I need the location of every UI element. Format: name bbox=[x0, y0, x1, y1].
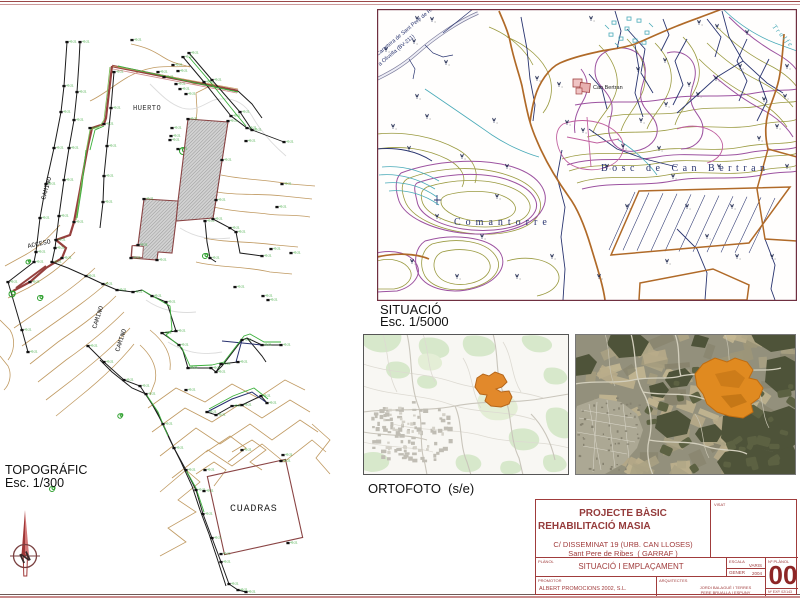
svg-text:49.21: 49.21 bbox=[140, 243, 148, 247]
svg-text:49.21: 49.21 bbox=[174, 126, 182, 130]
svg-text:CAMINO: CAMINO bbox=[114, 328, 128, 353]
svg-text:49.21: 49.21 bbox=[36, 260, 44, 264]
svg-text:49.21: 49.21 bbox=[283, 459, 291, 463]
svg-text:49.21: 49.21 bbox=[66, 178, 74, 182]
svg-text:CAMINO: CAMINO bbox=[40, 176, 53, 201]
svg-text:49.21: 49.21 bbox=[32, 280, 40, 284]
svg-text:49.21: 49.21 bbox=[66, 84, 74, 88]
svg-text:49.21: 49.21 bbox=[190, 366, 198, 370]
svg-text:49.21: 49.21 bbox=[191, 51, 199, 55]
svg-text:49.21: 49.21 bbox=[209, 410, 217, 414]
svg-text:49.21: 49.21 bbox=[224, 158, 232, 162]
svg-text:49.21: 49.21 bbox=[212, 256, 220, 260]
svg-text:49.21: 49.21 bbox=[126, 378, 134, 382]
svg-text:49.21: 49.21 bbox=[10, 280, 18, 284]
svg-text:49.21: 49.21 bbox=[79, 90, 87, 94]
svg-text:49.21: 49.21 bbox=[106, 174, 114, 178]
svg-text:49.21: 49.21 bbox=[181, 343, 189, 347]
svg-text:49.21: 49.21 bbox=[38, 250, 46, 254]
svg-text:49.21: 49.21 bbox=[54, 260, 62, 264]
svg-text:49.21: 49.21 bbox=[148, 392, 156, 396]
svg-text:Bosc de Can Bertran: Bosc de Can Bertran bbox=[601, 163, 770, 174]
svg-text:49.21: 49.21 bbox=[178, 82, 186, 86]
svg-text:49.21: 49.21 bbox=[133, 256, 141, 260]
svg-text:CAMINO: CAMINO bbox=[91, 305, 105, 330]
svg-text:49.21: 49.21 bbox=[240, 360, 248, 364]
svg-text:49.21: 49.21 bbox=[244, 403, 252, 407]
svg-text:49.21: 49.21 bbox=[146, 197, 154, 201]
svg-text:49.21: 49.21 bbox=[283, 343, 291, 347]
svg-text:49.21: 49.21 bbox=[116, 70, 124, 74]
svg-text:49.21: 49.21 bbox=[165, 422, 173, 426]
svg-text:49.21: 49.21 bbox=[269, 401, 277, 405]
svg-text:49.21: 49.21 bbox=[63, 110, 71, 114]
svg-text:49.21: 49.21 bbox=[154, 294, 162, 298]
svg-text:49.21: 49.21 bbox=[188, 468, 196, 472]
svg-text:49.21: 49.21 bbox=[233, 114, 241, 118]
svg-text:49.21: 49.21 bbox=[69, 40, 77, 44]
svg-text:49.21: 49.21 bbox=[135, 290, 143, 294]
svg-text:Comantorre: Comantorre bbox=[454, 217, 552, 228]
svg-text:49.21: 49.21 bbox=[56, 146, 64, 150]
svg-text:49.21: 49.21 bbox=[188, 388, 196, 392]
svg-text:49.21: 49.21 bbox=[244, 448, 252, 452]
svg-text:49.21: 49.21 bbox=[90, 344, 98, 348]
svg-text:49.21: 49.21 bbox=[286, 140, 294, 144]
svg-text:49.21: 49.21 bbox=[264, 254, 272, 258]
svg-text:49.21: 49.21 bbox=[248, 139, 256, 143]
svg-text:49.21: 49.21 bbox=[113, 106, 121, 110]
svg-text:49.21: 49.21 bbox=[105, 282, 113, 286]
svg-text:49.21: 49.21 bbox=[254, 128, 262, 132]
svg-text:49.21: 49.21 bbox=[218, 198, 226, 202]
svg-text:49.21: 49.21 bbox=[218, 413, 226, 417]
svg-text:49.21: 49.21 bbox=[178, 329, 186, 333]
svg-text:49.21: 49.21 bbox=[215, 217, 223, 221]
svg-text:49.21: 49.21 bbox=[223, 552, 231, 556]
svg-text:49.21: 49.21 bbox=[105, 200, 113, 204]
svg-text:49.21: 49.21 bbox=[244, 338, 252, 342]
svg-text:49.21: 49.21 bbox=[142, 384, 150, 388]
svg-text:49.21: 49.21 bbox=[240, 588, 248, 592]
svg-text:49.21: 49.21 bbox=[248, 590, 256, 594]
svg-text:49.21: 49.21 bbox=[190, 117, 198, 121]
svg-text:N: N bbox=[17, 548, 33, 567]
svg-text:49.21: 49.21 bbox=[290, 541, 298, 545]
svg-text:49.21: 49.21 bbox=[58, 238, 66, 242]
svg-text:49.21: 49.21 bbox=[214, 536, 222, 540]
svg-text:49.21: 49.21 bbox=[180, 147, 188, 151]
svg-text:49.21: 49.21 bbox=[223, 362, 231, 366]
svg-text:49.21: 49.21 bbox=[159, 258, 167, 262]
svg-text:49.21: 49.21 bbox=[119, 288, 127, 292]
svg-text:49.21: 49.21 bbox=[134, 38, 142, 42]
svg-text:49.21: 49.21 bbox=[205, 512, 213, 516]
svg-text:49.21: 49.21 bbox=[30, 350, 38, 354]
svg-text:49.21: 49.21 bbox=[166, 75, 174, 79]
svg-text:49.21: 49.21 bbox=[82, 40, 90, 44]
svg-text:49.21: 49.21 bbox=[270, 298, 278, 302]
svg-text:Can Bertran: Can Bertran bbox=[593, 85, 623, 91]
svg-text:49.21: 49.21 bbox=[109, 144, 117, 148]
svg-text:49.21: 49.21 bbox=[285, 453, 293, 457]
svg-text:49.21: 49.21 bbox=[168, 300, 176, 304]
svg-text:ACCESO: ACCESO bbox=[27, 238, 51, 250]
svg-text:49.21: 49.21 bbox=[175, 63, 183, 67]
svg-text:49.21: 49.21 bbox=[176, 446, 184, 450]
svg-text:HUERTO: HUERTO bbox=[133, 105, 161, 113]
svg-text:49.21: 49.21 bbox=[24, 328, 32, 332]
svg-text:49.21: 49.21 bbox=[180, 69, 188, 73]
svg-text:49.21: 49.21 bbox=[231, 582, 239, 586]
svg-text:49.21: 49.21 bbox=[293, 251, 301, 255]
svg-text:49.21: 49.21 bbox=[279, 205, 287, 209]
svg-text:49.21: 49.21 bbox=[237, 285, 245, 289]
svg-text:49.21: 49.21 bbox=[182, 87, 190, 91]
svg-text:49.21: 49.21 bbox=[185, 55, 193, 59]
svg-text:49.21: 49.21 bbox=[76, 220, 84, 224]
svg-text:49.21: 49.21 bbox=[263, 394, 271, 398]
svg-text:49.21: 49.21 bbox=[88, 274, 96, 278]
svg-text:49.21: 49.21 bbox=[61, 214, 69, 218]
svg-text:49.21: 49.21 bbox=[230, 119, 238, 123]
svg-text:49.21: 49.21 bbox=[64, 256, 72, 260]
svg-text:49.21: 49.21 bbox=[76, 118, 84, 122]
svg-text:49.21: 49.21 bbox=[42, 216, 50, 220]
svg-text:49.21: 49.21 bbox=[71, 146, 79, 150]
svg-text:49.21: 49.21 bbox=[264, 343, 272, 347]
svg-text:49.21: 49.21 bbox=[214, 78, 222, 82]
svg-text:49.21: 49.21 bbox=[273, 247, 281, 251]
svg-text:49.21: 49.21 bbox=[242, 110, 250, 114]
svg-text:49.21: 49.21 bbox=[106, 360, 114, 364]
svg-text:49.21: 49.21 bbox=[106, 122, 114, 126]
svg-text:49.21: 49.21 bbox=[207, 468, 215, 472]
svg-text:49.21: 49.21 bbox=[284, 182, 292, 186]
svg-text:49.21: 49.21 bbox=[160, 70, 168, 74]
svg-text:49.21: 49.21 bbox=[265, 294, 273, 298]
svg-text:CUADRAS: CUADRAS bbox=[230, 504, 278, 515]
svg-text:49.21: 49.21 bbox=[238, 230, 246, 234]
svg-text:49.21: 49.21 bbox=[172, 138, 180, 142]
svg-text:49.21: 49.21 bbox=[206, 489, 214, 493]
svg-text:49.21: 49.21 bbox=[57, 246, 65, 250]
svg-text:49.21: 49.21 bbox=[218, 370, 226, 374]
svg-text:49.21: 49.21 bbox=[188, 92, 196, 96]
svg-text:49.21: 49.21 bbox=[223, 560, 231, 564]
svg-text:49.21: 49.21 bbox=[92, 126, 100, 130]
svg-text:49.21: 49.21 bbox=[48, 182, 56, 186]
svg-text:49.21: 49.21 bbox=[164, 331, 172, 335]
